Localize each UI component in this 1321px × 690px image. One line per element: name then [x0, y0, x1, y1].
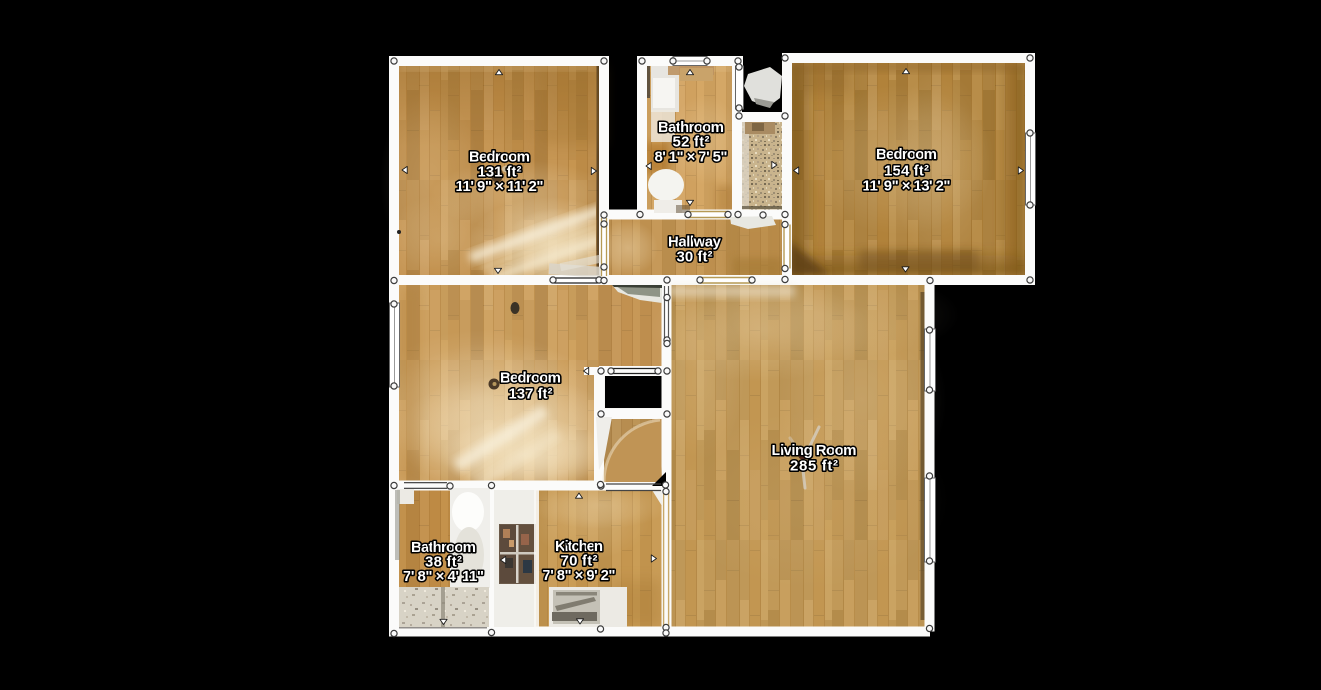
svg-text:Living Room: Living Room: [772, 442, 857, 459]
svg-text:11' 9" × 11' 2": 11' 9" × 11' 2": [456, 178, 544, 195]
svg-text:7' 8" × 4' 11": 7' 8" × 4' 11": [403, 568, 484, 585]
svg-text:285 ft²: 285 ft²: [790, 458, 838, 475]
svg-text:8' 1" × 7' 5": 8' 1" × 7' 5": [655, 149, 728, 166]
svg-text:11' 9" × 13' 2": 11' 9" × 13' 2": [863, 178, 951, 195]
svg-text:7' 8" × 9' 2": 7' 8" × 9' 2": [543, 567, 616, 584]
svg-text:Bedroom: Bedroom: [500, 370, 561, 387]
svg-text:30 ft²: 30 ft²: [677, 249, 713, 266]
svg-text:Bedroom: Bedroom: [876, 146, 937, 163]
svg-text:137 ft²: 137 ft²: [509, 386, 553, 403]
